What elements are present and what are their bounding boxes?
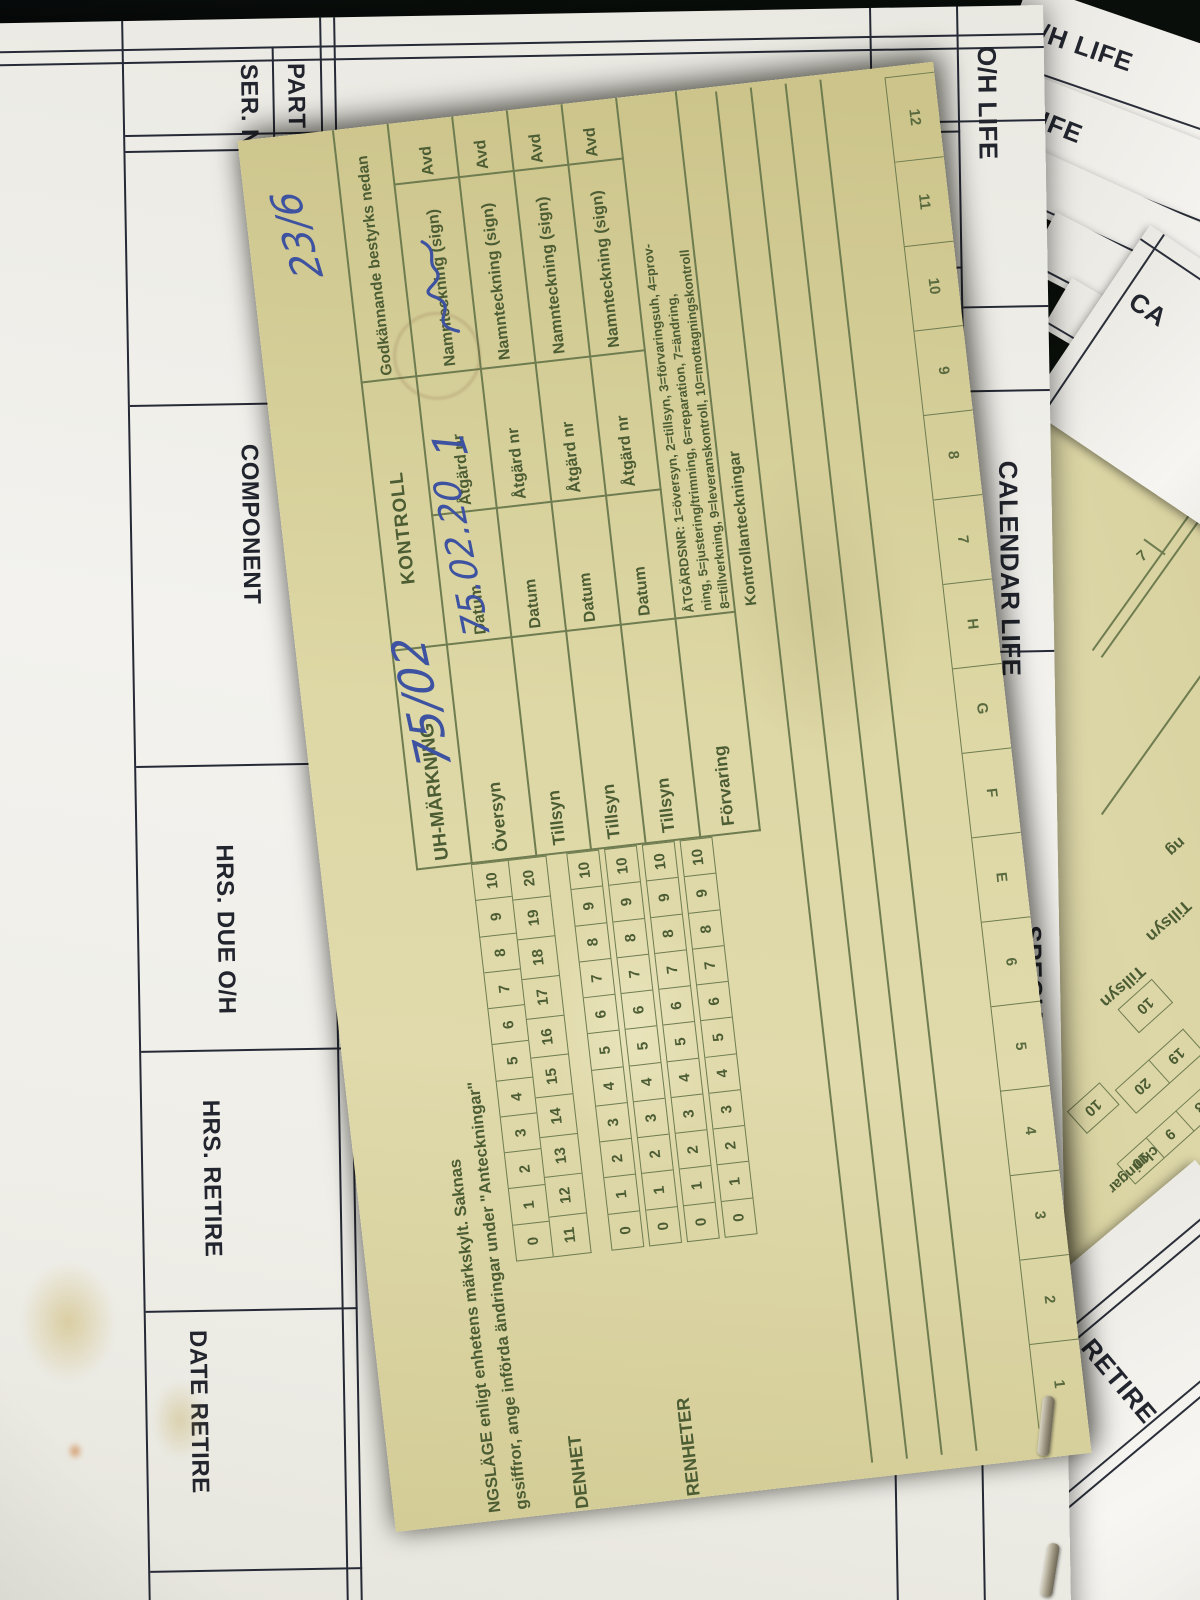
- col-label-datum: Datum: [577, 572, 601, 623]
- grid-cell: 10: [567, 851, 602, 891]
- paper-stain: [67, 1442, 83, 1460]
- grid-cell: 3: [501, 1113, 541, 1153]
- grid-cell: 2: [505, 1149, 545, 1189]
- back-card-grid-cell: 10: [1067, 1082, 1120, 1134]
- grid-cell: 14: [536, 1095, 577, 1139]
- ruled-line: [1101, 643, 1200, 815]
- grid-cell: 5: [588, 1031, 623, 1071]
- grid-cell: 6: [488, 1005, 528, 1045]
- grid-cell: 0: [684, 1203, 719, 1242]
- grid-cell: 2: [638, 1135, 673, 1175]
- fan-card-label: /H LIFE: [1036, 18, 1137, 79]
- col-label-avd: Avd: [472, 139, 493, 170]
- grid-cell: 4: [668, 1058, 703, 1098]
- edge-scale-cell: 4: [1001, 1085, 1059, 1175]
- grid-cell: 1: [680, 1167, 715, 1207]
- edge-scale-cell: 6: [982, 916, 1040, 1006]
- grid-cell: 6: [622, 991, 657, 1031]
- grid-cell: 10: [681, 838, 716, 878]
- header-component: COMPONENT: [235, 444, 266, 605]
- grid-cell: 3: [596, 1103, 631, 1143]
- photo-scene: Tillsyn Tillsyn ng ckningar 8910 1920 10…: [0, 0, 1200, 1600]
- grid-cell: 1: [604, 1175, 639, 1215]
- edge-scale-cell: 2: [1020, 1254, 1078, 1344]
- grid-cell: 2: [676, 1130, 711, 1170]
- edge-scale-cell: 10: [905, 241, 963, 331]
- col-label-atgard: Åtgärd nr: [505, 427, 531, 501]
- ruled-line: [715, 91, 873, 1462]
- edge-scale-cell: 11: [895, 156, 953, 246]
- grid-cell: 1: [509, 1185, 549, 1225]
- grid-cell: 8: [651, 914, 686, 954]
- grid-cell: 10: [605, 847, 640, 887]
- grid-cell: 1: [718, 1162, 753, 1202]
- row-label-forvaring: Förvaring: [709, 744, 739, 827]
- grid-cell: 4: [592, 1067, 627, 1107]
- row-label-tillsyn: Tillsyn: [543, 789, 570, 846]
- grid-cell: 7: [693, 946, 728, 986]
- grid-cell: 8: [576, 923, 611, 963]
- grid-cell: 3: [634, 1099, 669, 1139]
- edge-scale-cell: 8: [924, 410, 982, 500]
- grid-cell: 0: [608, 1211, 643, 1250]
- handwritten-action-number: 1: [420, 429, 479, 458]
- ruled-line: [750, 87, 908, 1458]
- row-label-tillsyn: Tillsyn: [598, 783, 625, 840]
- grid-cell: 2: [600, 1139, 635, 1179]
- kontroll-header: KONTROLL: [386, 470, 421, 585]
- col-label-datum: Datum: [631, 565, 655, 616]
- paper-stain: [20, 1261, 117, 1383]
- edge-scale-cell: F: [962, 747, 1020, 837]
- section-label-renheter: RENHETER: [673, 1396, 705, 1497]
- grid-cell: 19: [513, 896, 554, 940]
- grid-cell: 18: [518, 936, 559, 980]
- col-label-namnteckning: Namnteckning (sign): [479, 202, 515, 361]
- col-label-atgard: Åtgärd nr: [559, 420, 585, 494]
- edge-scale-digit: 7: [1133, 547, 1151, 565]
- handwritten-uh-marking: 75/02: [380, 637, 463, 769]
- grid-cell: 7: [580, 959, 615, 999]
- edge-scale-cell: 7: [934, 494, 992, 584]
- grid-cell: 0: [513, 1221, 553, 1260]
- col-label-namnteckning: Namnteckning (sign): [588, 189, 624, 348]
- band-line: [122, 21, 153, 1600]
- grid-cell: 5: [626, 1027, 661, 1067]
- edge-scale-cell: 1: [1030, 1338, 1088, 1428]
- row-label-tillsyn: Tillsyn: [652, 777, 679, 834]
- grid-cell: 16: [527, 1015, 568, 1059]
- grid-cell: 6: [659, 986, 694, 1026]
- grid-cell: 17: [522, 976, 563, 1020]
- section-label-denhet: DENHET: [564, 1434, 593, 1510]
- edge-scale-cell: G: [953, 663, 1011, 753]
- grid-cell: 5: [701, 1018, 736, 1058]
- col-label-avd: Avd: [527, 133, 548, 164]
- approval-header: Godkännande bestyrks nedan: [354, 154, 397, 376]
- grid-cell: 15: [531, 1055, 572, 1099]
- edge-tick: [1143, 539, 1165, 556]
- grid-cell: 11: [549, 1214, 590, 1257]
- grid-cell: 0: [646, 1207, 681, 1246]
- grid-cell: 7: [617, 955, 652, 995]
- grid-cell: 5: [493, 1041, 533, 1081]
- retire-label: RETIRE: [1075, 1333, 1164, 1431]
- grid-cell: 13: [540, 1134, 581, 1178]
- grid-cell: 2: [713, 1126, 748, 1166]
- grid-cell: 3: [672, 1094, 707, 1134]
- grid-cell: 9: [609, 883, 644, 923]
- row-label-oversyn: Översyn: [484, 781, 513, 853]
- edge-scale-cell: 9: [914, 325, 972, 415]
- grid-cell: 4: [705, 1054, 740, 1094]
- cell-line: [146, 1307, 358, 1312]
- header-oh-life: O/H LIFE: [971, 46, 1004, 160]
- col-label-atgard: Åtgärd nr: [614, 414, 640, 488]
- cell-line: [150, 1567, 362, 1572]
- grid-cell: 9: [647, 878, 682, 918]
- grid-cell: 3: [709, 1090, 744, 1130]
- grid-cell: 5: [663, 1022, 698, 1062]
- col-label-namnteckning: Namnteckning (sign): [534, 196, 570, 355]
- edge-scale-cell: H: [943, 578, 1001, 668]
- grid-cell: 4: [630, 1063, 665, 1103]
- grid-cell: 7: [655, 950, 690, 990]
- col-label-datum: Datum: [522, 578, 546, 629]
- header-hrs-due: HRS. DUE O/H: [210, 844, 241, 1014]
- grid-cell: 6: [697, 982, 732, 1022]
- col-label-avd: Avd: [417, 145, 438, 176]
- grid-cell: 7: [484, 969, 524, 1009]
- grid-cell: 10: [1067, 1082, 1120, 1134]
- edge-scale-cell: 5: [991, 1001, 1049, 1091]
- grid-cell: 0: [722, 1198, 757, 1237]
- back-card-row-label: Tillsyn: [1142, 895, 1195, 946]
- card-border-line: [0, 33, 1044, 55]
- header-hrs-retire: HRS. RETIRE: [196, 1099, 227, 1257]
- grid-cell: 10: [472, 861, 512, 901]
- edge-scale-cell: E: [972, 832, 1030, 922]
- grid-cell: 9: [685, 874, 720, 914]
- grid-cell: 8: [613, 919, 648, 959]
- grid-cell: 20: [509, 857, 550, 901]
- grid-line: [963, 305, 1048, 308]
- grid-cell: 6: [584, 995, 619, 1035]
- col-label-avd: Avd: [581, 126, 602, 157]
- fan-card-label: CA: [1123, 286, 1173, 334]
- grid-cell: 10: [643, 842, 678, 882]
- grid-cell: 9: [476, 897, 516, 937]
- back-card-text-fragment: ng: [1162, 833, 1189, 859]
- grid-cell: 12: [545, 1174, 586, 1218]
- edge-scale-cell: 12: [885, 72, 943, 162]
- grid-cell: 4: [497, 1077, 537, 1117]
- handwritten-avd: 23/6: [262, 189, 334, 280]
- grid-cell: 9: [571, 887, 606, 927]
- cell-line: [141, 1047, 353, 1052]
- grid-cell: 8: [480, 933, 520, 973]
- grid-cell: 1: [642, 1171, 677, 1211]
- grid-cell: 8: [689, 910, 724, 950]
- edge-scale-cell: 3: [1011, 1170, 1069, 1260]
